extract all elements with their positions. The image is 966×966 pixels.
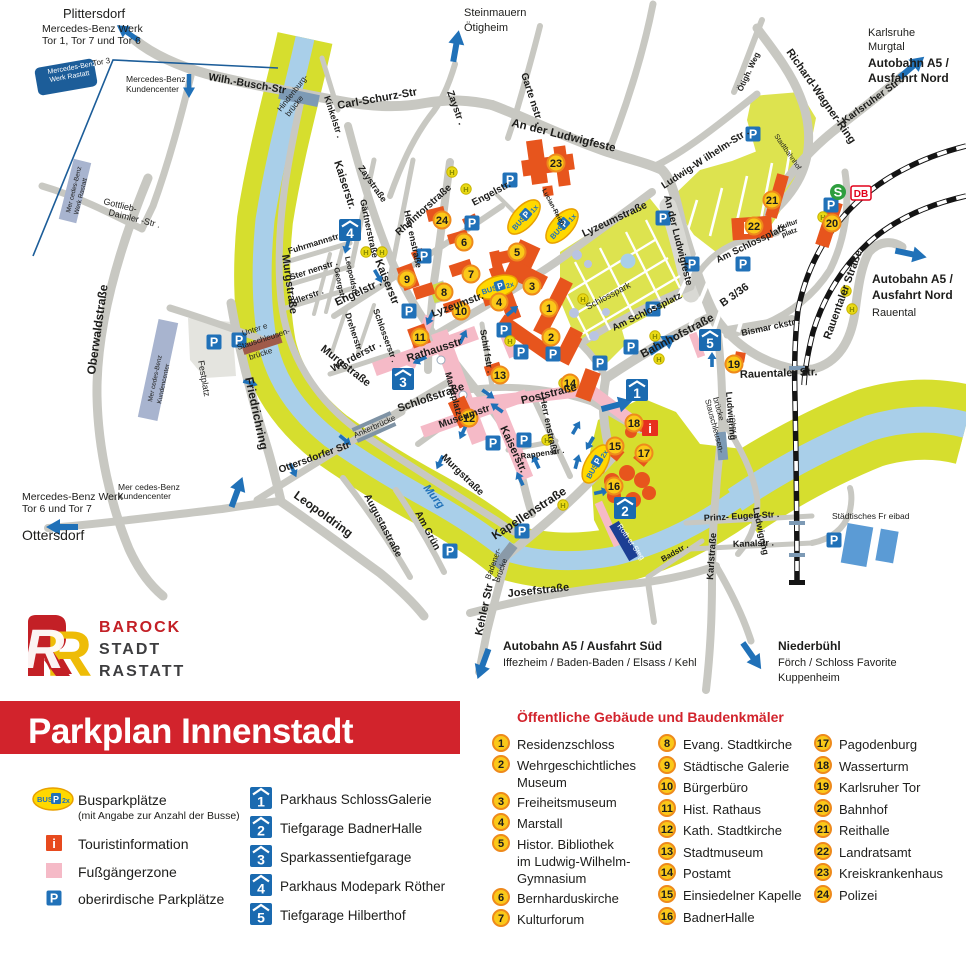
svg-text:Kundencenter: Kundencenter xyxy=(126,84,179,94)
svg-text:Hist. Rathaus: Hist. Rathaus xyxy=(683,802,762,817)
svg-text:i: i xyxy=(648,421,652,436)
svg-text:12: 12 xyxy=(661,824,673,836)
svg-text:9: 9 xyxy=(404,274,410,286)
svg-text:Museum: Museum xyxy=(517,775,567,790)
svg-text:Mercedes-Benz: Mercedes-Benz xyxy=(126,74,186,84)
svg-text:Ötigheim: Ötigheim xyxy=(464,22,508,34)
svg-text:8: 8 xyxy=(441,287,447,299)
svg-text:P: P xyxy=(53,795,59,805)
svg-text:Histor. Bibliothek: Histor. Bibliothek xyxy=(517,837,614,852)
svg-text:RASTATT: RASTATT xyxy=(99,663,185,680)
svg-text:Marstall: Marstall xyxy=(517,816,563,831)
svg-text:Städtisches Fr eibad: Städtisches Fr eibad xyxy=(832,511,910,521)
svg-text:Fußgängerzone: Fußgängerzone xyxy=(78,864,177,880)
svg-text:7: 7 xyxy=(468,269,474,281)
svg-text:6: 6 xyxy=(498,892,504,904)
svg-text:4: 4 xyxy=(257,881,265,897)
svg-text:Gymnasium: Gymnasium xyxy=(517,871,586,886)
svg-text:17: 17 xyxy=(638,448,650,460)
svg-text:11: 11 xyxy=(661,803,673,815)
svg-text:Autobahn A5 / Ausfahrt Süd: Autobahn A5 / Ausfahrt Süd xyxy=(503,639,662,653)
svg-text:i: i xyxy=(52,836,56,851)
svg-text:Kath. Stadtkirche: Kath. Stadtkirche xyxy=(683,823,782,838)
svg-text:18: 18 xyxy=(628,418,640,430)
svg-text:3: 3 xyxy=(498,796,504,808)
svg-text:Murgtal: Murgtal xyxy=(868,41,905,53)
svg-text:Tiefgarage BadnerHalle: Tiefgarage BadnerHalle xyxy=(280,821,422,836)
svg-text:S: S xyxy=(834,185,843,200)
svg-text:2x: 2x xyxy=(62,798,70,805)
svg-text:BAROCK: BAROCK xyxy=(99,619,181,636)
svg-text:3: 3 xyxy=(399,375,407,390)
svg-text:Öffentliche Gebäude und Bauden: Öffentliche Gebäude und Baudenkmäler xyxy=(517,709,784,725)
svg-text:Förch / Schloss Favorite: Förch / Schloss Favorite xyxy=(778,657,897,669)
svg-text:1: 1 xyxy=(257,794,265,810)
svg-text:21: 21 xyxy=(817,824,829,836)
svg-text:Tor 1, Tor 7 und Tor 6: Tor 1, Tor 7 und Tor 6 xyxy=(42,35,141,47)
svg-text:Stadtmuseum: Stadtmuseum xyxy=(683,845,763,860)
svg-text:8: 8 xyxy=(664,738,670,750)
svg-text:BUS: BUS xyxy=(37,795,53,804)
svg-text:Autobahn A5 /: Autobahn A5 / xyxy=(872,272,954,286)
svg-text:21: 21 xyxy=(766,195,778,207)
svg-text:1: 1 xyxy=(633,386,641,401)
svg-text:Evang. Stadtkirche: Evang. Stadtkirche xyxy=(683,737,792,752)
svg-text:22: 22 xyxy=(748,221,760,233)
svg-text:STADT: STADT xyxy=(99,641,161,658)
svg-text:Kulturforum: Kulturforum xyxy=(517,912,584,927)
svg-text:Ausfahrt Nord: Ausfahrt Nord xyxy=(872,288,953,302)
svg-text:Parkplan Innenstadt: Parkplan Innenstadt xyxy=(28,712,354,751)
svg-text:BadnerHalle: BadnerHalle xyxy=(683,910,755,925)
svg-text:17: 17 xyxy=(817,738,829,750)
svg-text:Bahnhof: Bahnhof xyxy=(839,802,888,817)
svg-text:Karlsruher Tor: Karlsruher Tor xyxy=(839,780,921,795)
svg-text:15: 15 xyxy=(661,889,673,901)
svg-text:11: 11 xyxy=(414,332,426,344)
svg-text:Mercedes-Benz Werk: Mercedes-Benz Werk xyxy=(42,23,144,35)
svg-text:Reithalle: Reithalle xyxy=(839,823,890,838)
svg-text:Autobahn A5 /: Autobahn A5 / xyxy=(868,56,950,70)
svg-text:2: 2 xyxy=(498,759,504,771)
svg-text:Parkhaus SchlossGalerie: Parkhaus SchlossGalerie xyxy=(280,792,432,807)
svg-text:Einsiedelner Kapelle: Einsiedelner Kapelle xyxy=(683,888,802,903)
svg-text:1: 1 xyxy=(498,738,504,750)
svg-text:13: 13 xyxy=(661,846,673,858)
svg-text:Sparkassentiefgarage: Sparkassentiefgarage xyxy=(280,850,411,865)
svg-text:24: 24 xyxy=(436,215,449,227)
svg-text:Polizei: Polizei xyxy=(839,888,877,903)
svg-text:Wehrgeschichtliches: Wehrgeschichtliches xyxy=(517,758,636,773)
svg-text:Karlsruhe: Karlsruhe xyxy=(868,27,915,39)
svg-text:5: 5 xyxy=(706,336,714,351)
svg-text:Niederbühl: Niederbühl xyxy=(778,639,841,653)
svg-text:Postamt: Postamt xyxy=(683,866,731,881)
svg-text:Residenzschloss: Residenzschloss xyxy=(517,737,615,752)
svg-text:Bürgerbüro: Bürgerbüro xyxy=(683,780,748,795)
svg-text:Tiefgarage Hilberthof: Tiefgarage Hilberthof xyxy=(280,908,406,923)
svg-text:9: 9 xyxy=(664,760,670,772)
svg-text:Parkhaus Modepark Röther: Parkhaus Modepark Röther xyxy=(280,879,446,894)
svg-text:24: 24 xyxy=(817,889,830,901)
svg-text:Mercedes-Benz Werk: Mercedes-Benz Werk xyxy=(22,491,124,503)
svg-text:18: 18 xyxy=(817,760,829,772)
svg-text:4: 4 xyxy=(496,297,503,309)
svg-text:22: 22 xyxy=(817,846,829,858)
svg-text:19: 19 xyxy=(728,359,740,371)
svg-text:2: 2 xyxy=(548,332,554,344)
svg-text:Rauental: Rauental xyxy=(872,307,916,319)
svg-text:Ausfahrt Nord: Ausfahrt Nord xyxy=(868,71,949,85)
svg-text:im Ludwig-Wilhelm-: im Ludwig-Wilhelm- xyxy=(517,854,630,869)
svg-text:4: 4 xyxy=(346,226,354,241)
svg-text:4: 4 xyxy=(498,817,505,829)
svg-text:10: 10 xyxy=(661,781,673,793)
svg-text:oberirdische Parkplätze: oberirdische Parkplätze xyxy=(78,891,225,907)
svg-text:Kanalstr .: Kanalstr . xyxy=(733,538,774,549)
svg-text:5: 5 xyxy=(498,838,504,850)
svg-text:DB: DB xyxy=(854,189,868,200)
svg-text:19: 19 xyxy=(817,781,829,793)
svg-text:15: 15 xyxy=(609,441,621,453)
svg-text:Freiheitsmuseum: Freiheitsmuseum xyxy=(517,795,617,810)
svg-text:23: 23 xyxy=(817,867,829,879)
svg-text:Kuppenheim: Kuppenheim xyxy=(778,672,840,684)
svg-text:Städtische Galerie: Städtische Galerie xyxy=(683,759,789,774)
svg-text:6: 6 xyxy=(461,237,467,249)
svg-text:2: 2 xyxy=(621,504,629,519)
svg-text:Ottersdorf: Ottersdorf xyxy=(22,527,84,543)
svg-text:5: 5 xyxy=(257,910,265,926)
svg-text:3: 3 xyxy=(257,852,265,868)
svg-text:Landratsamt: Landratsamt xyxy=(839,845,912,860)
svg-text:Kundencenter: Kundencenter xyxy=(118,491,171,501)
svg-text:R: R xyxy=(24,617,65,680)
svg-text:16: 16 xyxy=(661,911,673,923)
svg-text:7: 7 xyxy=(498,913,504,925)
svg-text:Tor 6 und Tor 7: Tor 6 und Tor 7 xyxy=(22,503,92,515)
svg-text:Pagodenburg: Pagodenburg xyxy=(839,737,917,752)
svg-text:3: 3 xyxy=(529,281,535,293)
svg-text:14: 14 xyxy=(661,867,674,879)
svg-text:2: 2 xyxy=(257,823,265,839)
svg-text:Iffezheim / Baden-Baden / Elsa: Iffezheim / Baden-Baden / Elsass / Kehl xyxy=(503,657,697,669)
svg-text:20: 20 xyxy=(817,803,829,815)
svg-text:Plittersdorf: Plittersdorf xyxy=(63,6,126,21)
svg-text:5: 5 xyxy=(514,247,520,259)
svg-text:Wasserturm: Wasserturm xyxy=(839,759,909,774)
svg-text:20: 20 xyxy=(826,218,838,230)
svg-text:1: 1 xyxy=(546,303,552,315)
svg-text:Bernharduskirche: Bernharduskirche xyxy=(517,891,619,906)
svg-text:Busparkplätze: Busparkplätze xyxy=(78,792,167,808)
svg-text:(mit Angabe zur Anzahl der Bus: (mit Angabe zur Anzahl der Busse) xyxy=(78,810,240,822)
svg-text:Touristinformation: Touristinformation xyxy=(78,836,189,852)
svg-text:16: 16 xyxy=(608,481,620,493)
svg-text:Steinmauern: Steinmauern xyxy=(464,7,526,19)
svg-text:Kreiskrankenhaus: Kreiskrankenhaus xyxy=(839,866,944,881)
svg-text:23: 23 xyxy=(550,158,562,170)
